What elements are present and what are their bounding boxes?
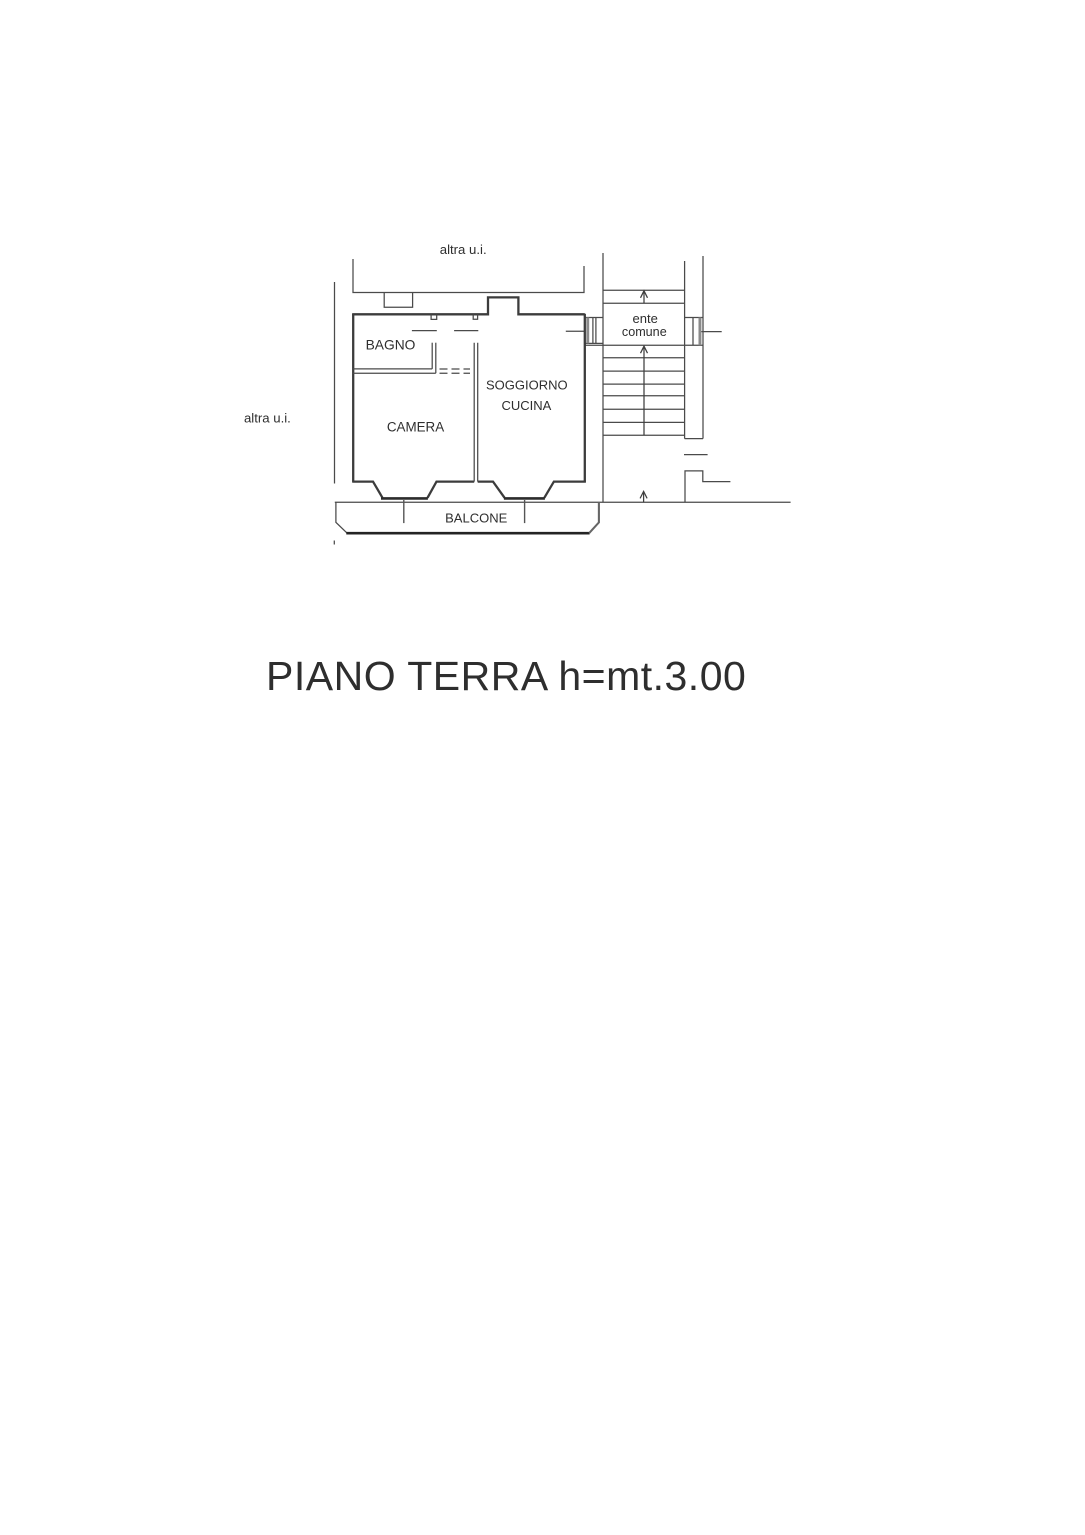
svg-text:CUCINA: CUCINA: [501, 398, 551, 413]
svg-text:altra u.i.: altra u.i.: [440, 242, 487, 257]
svg-text:SOGGIORNO: SOGGIORNO: [486, 377, 568, 392]
svg-text:CAMERA: CAMERA: [387, 419, 444, 434]
svg-text:comune: comune: [622, 325, 667, 339]
svg-text:ente: ente: [633, 311, 658, 326]
svg-text:PIANO TERRA h=mt.3.00: PIANO TERRA h=mt.3.00: [266, 653, 746, 699]
svg-text:BALCONE: BALCONE: [445, 511, 507, 526]
svg-text:BAGNO: BAGNO: [366, 338, 416, 353]
svg-text:altra u.i.: altra u.i.: [244, 410, 291, 425]
